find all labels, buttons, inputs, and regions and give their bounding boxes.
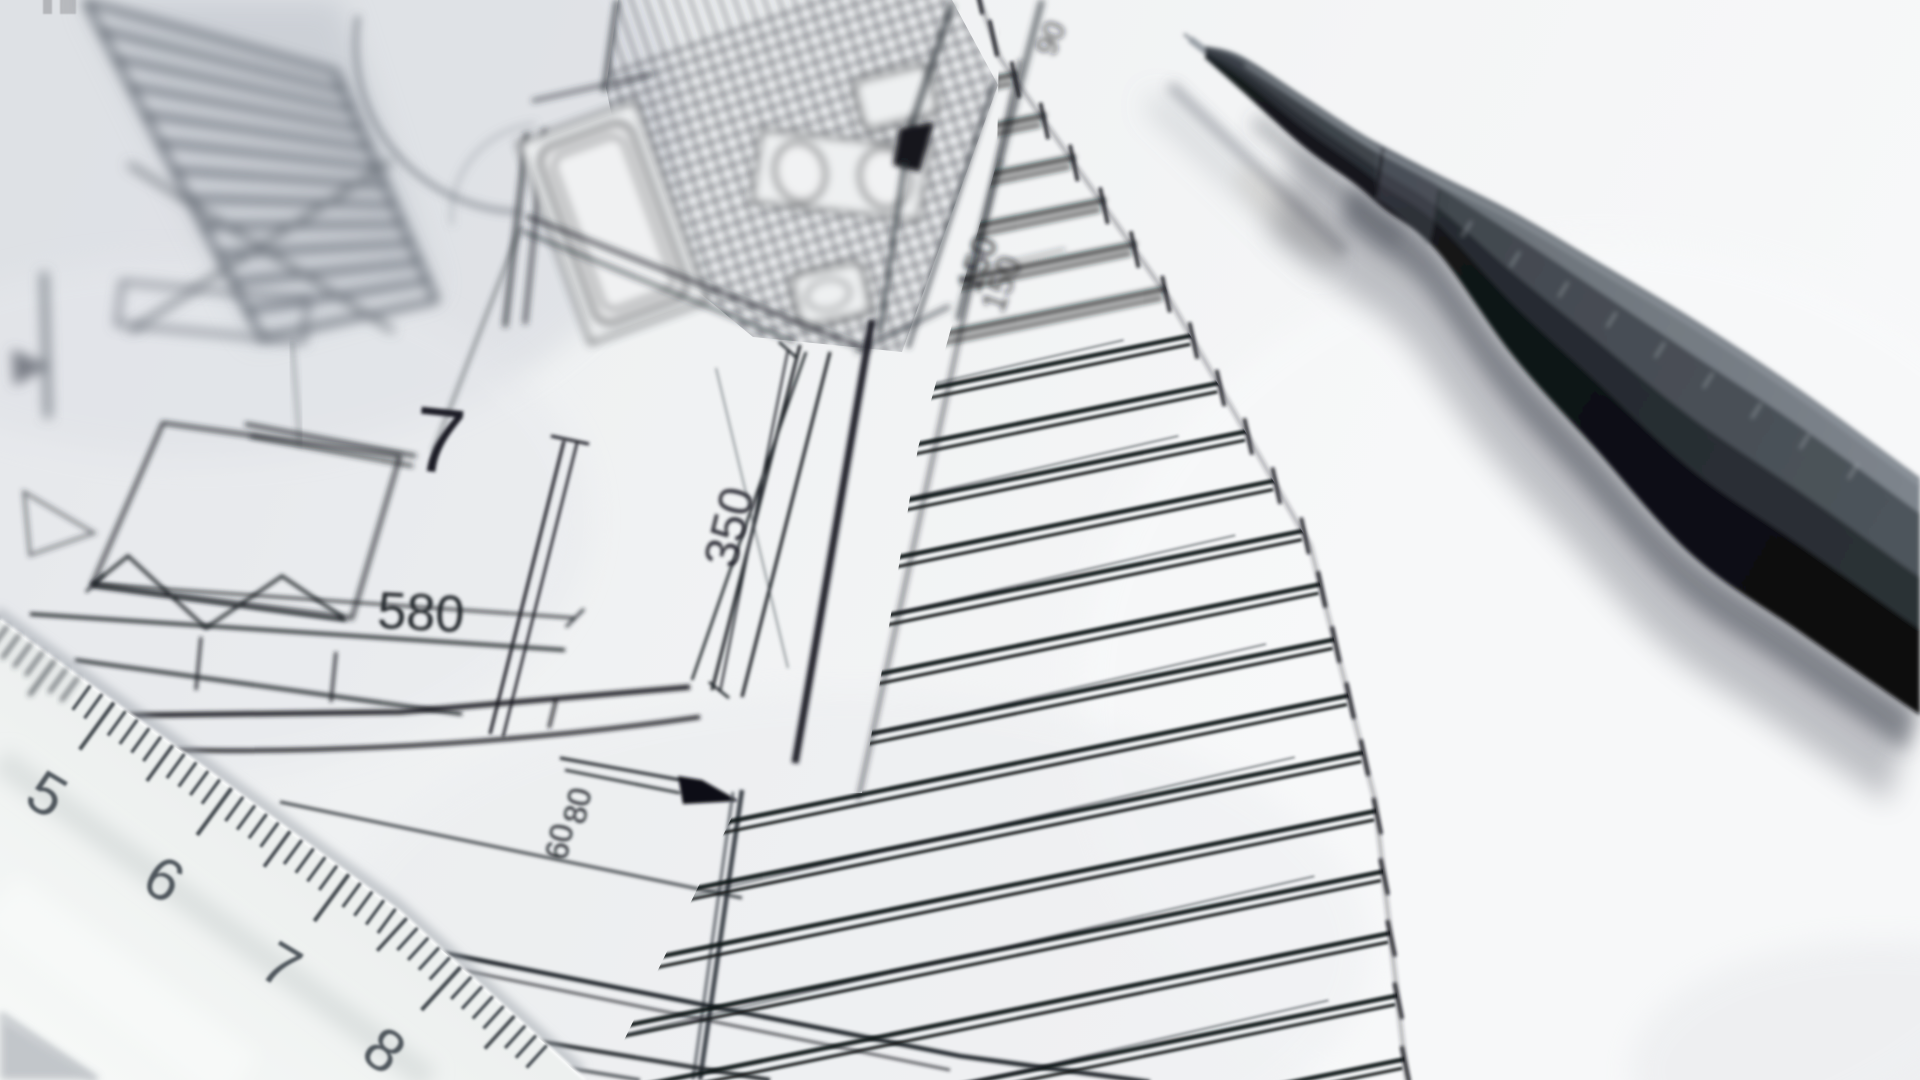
svg-text:80: 80 [556, 785, 599, 827]
svg-text:580: 580 [376, 582, 466, 644]
svg-text:7: 7 [408, 388, 470, 495]
